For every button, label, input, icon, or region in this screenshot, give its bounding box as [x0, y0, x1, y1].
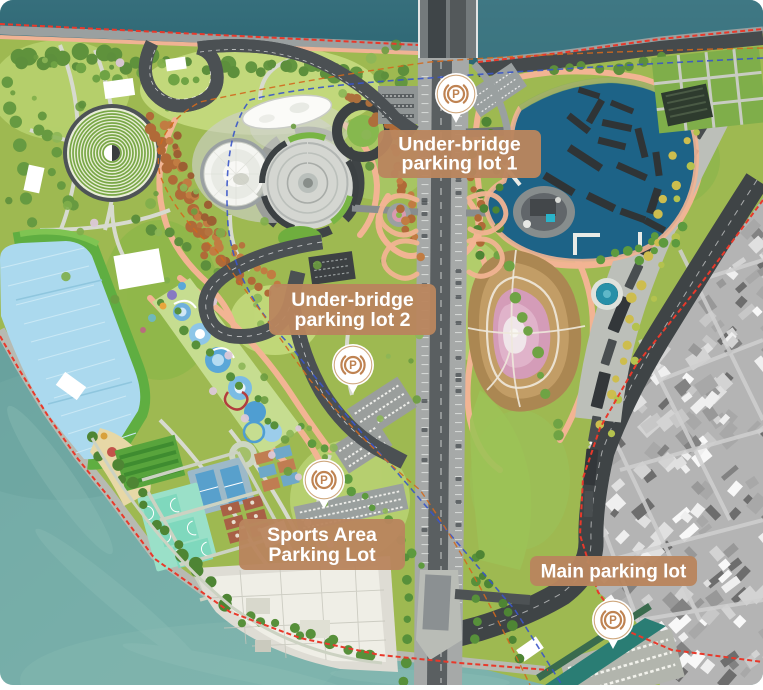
- svg-text:Sports Area: Sports Area: [267, 524, 377, 546]
- svg-text:P: P: [320, 475, 328, 487]
- svg-text:P: P: [349, 360, 357, 372]
- svg-text:Under-bridge: Under-bridge: [291, 289, 414, 311]
- svg-text:parking lot 1: parking lot 1: [402, 152, 518, 174]
- svg-text:Parking Lot: Parking Lot: [268, 544, 376, 566]
- svg-text:P: P: [609, 615, 617, 627]
- svg-text:parking lot 2: parking lot 2: [295, 309, 411, 331]
- svg-text:Main parking lot: Main parking lot: [541, 562, 687, 583]
- svg-text:P: P: [452, 89, 460, 101]
